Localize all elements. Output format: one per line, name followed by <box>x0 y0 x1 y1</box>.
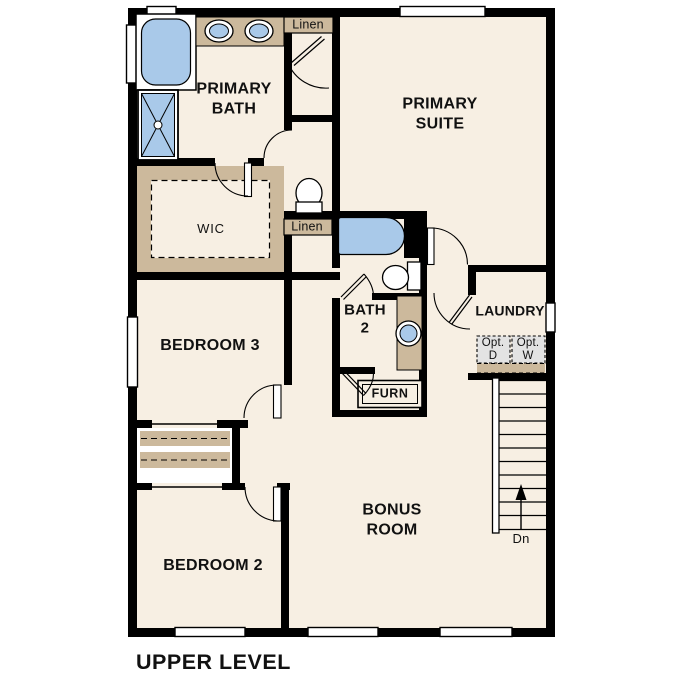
window <box>128 317 138 387</box>
window <box>175 628 245 637</box>
floor-plan-drawing <box>0 0 687 687</box>
bedroom-closet-shelving <box>137 424 232 487</box>
window <box>546 303 555 332</box>
room-label-laundry: LAUNDRY <box>475 302 544 319</box>
label-linen-hall: Linen <box>291 219 323 234</box>
door-leaf <box>245 163 252 197</box>
window <box>127 25 137 83</box>
bathtub <box>339 218 405 255</box>
page-title: UPPER LEVEL <box>136 650 291 675</box>
wic-shelving <box>137 166 284 272</box>
room-label-wic: WIC <box>197 221 225 237</box>
shower-drain <box>154 121 162 129</box>
label-optional-dryer: Opt. D <box>482 337 505 363</box>
floor-area <box>128 8 555 637</box>
laundry-counter <box>477 364 545 374</box>
stair-stringer <box>493 378 500 533</box>
floor-plan-page: PRIMARY BATH PRIMARY SUITE WIC BATH 2 LA… <box>0 0 687 687</box>
room-label-primary-suite: PRIMARY SUITE <box>402 94 477 133</box>
label-furnace: FURN <box>372 386 409 401</box>
label-optional-washer: Opt. W <box>517 337 540 363</box>
room-label-primary-bath: PRIMARY BATH <box>196 79 271 118</box>
door-leaf <box>274 385 282 418</box>
room-label-bonus-room: BONUS ROOM <box>362 500 421 539</box>
door-leaf <box>428 228 435 265</box>
window <box>400 7 485 17</box>
room-label-bedroom-3: BEDROOM 3 <box>160 336 260 356</box>
bathtub <box>142 19 191 85</box>
toilet <box>408 262 422 290</box>
room-label-bedroom-2: BEDROOM 2 <box>163 556 263 576</box>
room-label-bath-2: BATH 2 <box>344 302 386 339</box>
door-leaf <box>274 487 282 521</box>
window <box>440 628 512 637</box>
label-linen-upper: Linen <box>292 17 324 32</box>
label-stairs-down: Dn <box>512 531 529 547</box>
window <box>308 628 378 637</box>
